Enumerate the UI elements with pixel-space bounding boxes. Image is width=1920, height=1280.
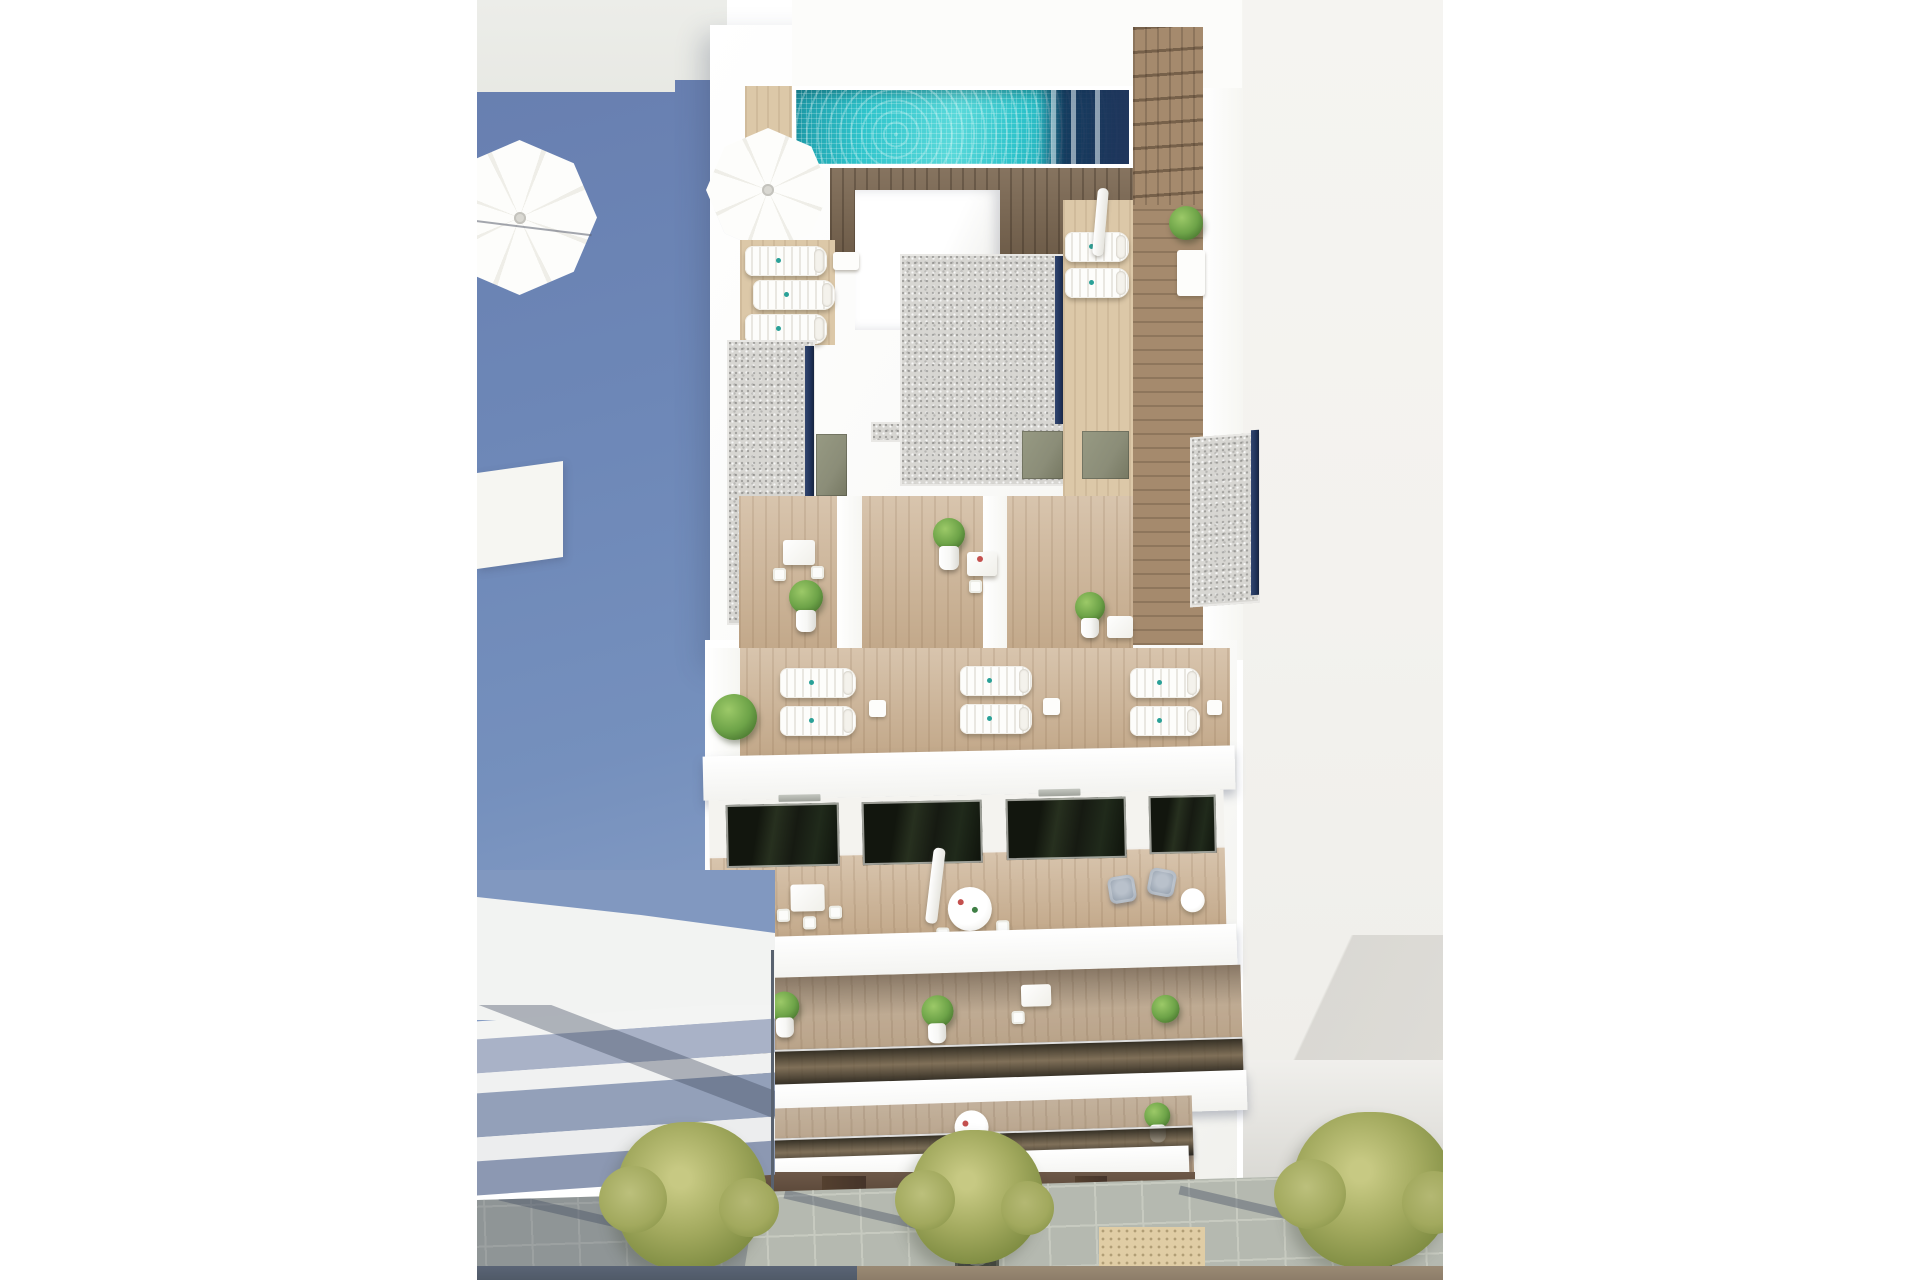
tactile-paving [1099, 1227, 1205, 1271]
terrace-divider-wall [983, 496, 1007, 660]
balcony-chair [829, 906, 842, 919]
terrace-door [1022, 431, 1063, 479]
balcony-level-1 [709, 790, 1227, 946]
terrace-plant [789, 580, 823, 614]
plant-pot [939, 546, 959, 570]
terrace-table [1107, 616, 1133, 638]
balcony-chair [1012, 1011, 1025, 1024]
sun-lounger [780, 668, 856, 698]
skylight-strip [1251, 430, 1259, 596]
terrace-chair [773, 568, 786, 581]
lounger-side-table [869, 700, 886, 717]
balcony-dining-table [790, 884, 825, 912]
terrace-chair [969, 580, 982, 593]
glass-sliding-door [1006, 797, 1127, 860]
building-joint-line [771, 950, 774, 1205]
glass-sliding-door [726, 803, 840, 868]
terrace-door [1082, 431, 1129, 479]
glass-sliding-door [1149, 795, 1217, 854]
neighbour-upper-slab [477, 870, 775, 1020]
balcony-chair [777, 909, 790, 922]
sun-lounger [960, 666, 1032, 696]
gravel-roof-center-notch [871, 422, 901, 442]
lounger-side-table [1043, 698, 1060, 715]
planter-bush [1169, 206, 1203, 240]
aerial-render [477, 0, 1443, 1280]
terrace-plant [711, 694, 757, 740]
balcony-table [1021, 984, 1052, 1007]
pool-building-reflection [1037, 90, 1129, 164]
terrace-chair [811, 566, 824, 579]
lounger-side-table [833, 252, 859, 270]
balcony-chair [803, 916, 816, 929]
outdoor-armchair [1146, 867, 1178, 899]
sun-lounger [960, 704, 1032, 734]
road-edge-left [477, 1266, 857, 1280]
screenshot-canvas [0, 0, 1920, 1280]
road-edge-right [857, 1266, 1443, 1280]
rooftop-stair-walkway [1133, 27, 1203, 207]
street-tree [1293, 1112, 1443, 1268]
mid-terraces [739, 496, 1133, 660]
plant-pot [796, 610, 816, 632]
terrace-table [783, 540, 815, 565]
facade-vent [1038, 789, 1080, 797]
plant-pot [1081, 618, 1099, 638]
neighbour-slab-shadow [477, 870, 775, 1020]
facade-vent [778, 794, 820, 802]
gravel-roof-right [1190, 433, 1260, 608]
rooftop-pool [792, 86, 1133, 168]
terrace-door [816, 434, 847, 496]
sun-lounger [1065, 268, 1129, 298]
lounger-side-table [1207, 700, 1222, 715]
terrace-divider-wall [837, 496, 862, 660]
sun-lounger [745, 246, 827, 276]
plant-pot [776, 1017, 795, 1037]
sun-lounger [1130, 668, 1200, 698]
outdoor-armchair [1107, 874, 1138, 905]
table-decor [977, 556, 983, 562]
plant-pot [928, 1023, 947, 1043]
glass-sliding-door [862, 800, 983, 865]
sun-lounger [1130, 706, 1200, 736]
terrace-table [967, 552, 997, 576]
sun-lounger [780, 706, 856, 736]
planter-table [1177, 250, 1205, 296]
sun-lounger [753, 280, 835, 310]
